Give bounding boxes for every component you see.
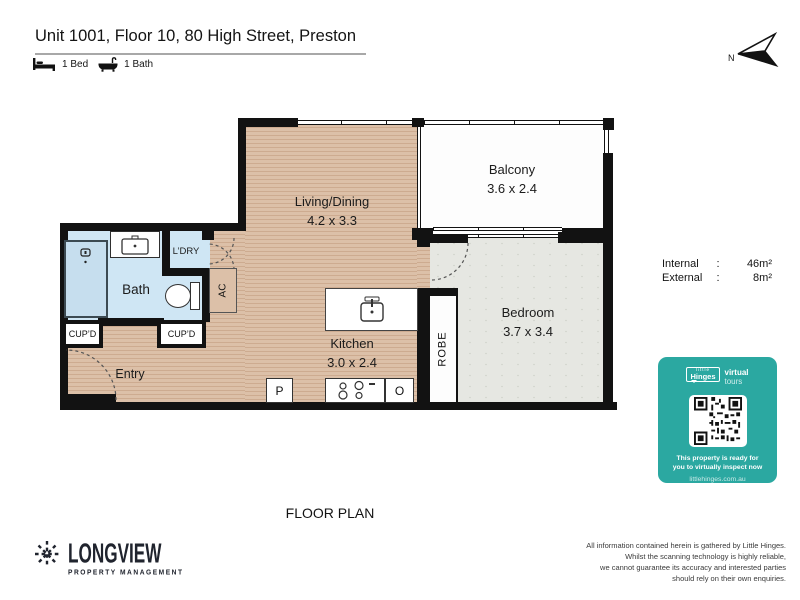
hinges-logo-box: little Hinges [686,367,719,382]
room-name: Bath [122,282,150,297]
internal-value: 46m² [722,257,772,271]
internal-area-row: Internal : 46m² [662,257,772,271]
badge-url[interactable]: littlehinges.com.au [689,476,745,483]
longview-logo: LONGVIEW PROPERTY MANAGEMENT [34,540,190,576]
room-label-entry: Entry [90,365,170,383]
shower-head-icon [79,248,93,270]
starburst-icon [34,540,60,568]
badge-message-line1: This property is ready for [673,454,763,463]
title-underline [35,53,366,55]
island-sink-icon [357,296,387,324]
robe-label: ROBE [430,295,456,402]
longview-subtitle: PROPERTY MANAGEMENT [68,569,184,577]
bed-icon [33,58,56,72]
room-label-bath: Bath [106,280,166,300]
cupboard-right-label: CUP’D [168,329,196,339]
cooktop-burners-icon [329,380,381,401]
disclaimer-line: should rely on their own enquiries. [500,574,786,585]
room-dims: 3.0 x 2.4 [327,355,377,370]
room-name: Bedroom [502,305,555,320]
ac-unit: AC [209,268,237,313]
laundry-label: L’DRY [166,245,206,259]
cooktop [325,378,385,403]
laundry-text: L’DRY [173,246,200,257]
north-arrow-icon [737,32,779,70]
longview-wordmark: LONGVIEW PROPERTY MANAGEMENT [68,540,190,576]
bed-count-label: 1 Bed [62,59,88,70]
shower [64,240,108,318]
qr-code-icon [694,397,742,445]
pantry-label: P [275,384,283,398]
robe-text: ROBE [437,331,449,366]
pantry: P [266,378,293,403]
external-value: 8m² [722,271,772,285]
floor-plan: AC P O CUP’D [60,118,617,410]
disclaimer-line: we cannot guarantee its accuracy and int… [500,563,786,574]
qr-code[interactable] [689,395,747,447]
toilet-cistern [190,282,200,310]
internal-label: Internal [662,257,714,271]
external-area-row: External : 8m² [662,271,772,285]
room-dims: 3.6 x 2.4 [487,181,537,196]
oven: O [385,378,414,403]
plan-caption: FLOOR PLAN [230,505,430,521]
room-dims: 4.2 x 3.3 [307,213,357,228]
colon: : [714,271,722,285]
room-name: Balcony [489,162,535,177]
bath-icon [98,57,118,72]
little-hinges-logo: little Hinges virtual tours [686,367,748,387]
cupboard-left: CUP’D [62,320,103,348]
brand-hinges: Hinges [690,373,715,381]
room-label-bedroom: Bedroom 3.7 x 3.4 [448,304,608,342]
room-dims: 3.7 x 3.4 [503,324,553,339]
bath-summary: 1 Bath [98,57,153,72]
north-label: N [728,53,735,63]
bath-count-label: 1 Bath [124,59,153,70]
room-name: Living/Dining [295,194,369,209]
disclaimer: All information contained herein is gath… [500,541,786,585]
north-compass: N [728,32,779,70]
tag-tours: tours [725,378,749,387]
room-label-balcony: Balcony 3.6 x 2.4 [432,161,592,199]
kitchen-island [325,288,418,331]
cupboard-right: CUP’D [157,320,206,348]
oven-label: O [395,384,404,398]
virtual-tours-wordmark: virtual tours [725,369,749,387]
badge-message-line2: you to virtually inspect now [673,463,763,472]
ac-label: AC [218,284,229,298]
sink-icon [121,235,149,255]
external-label: External [662,271,714,285]
bathroom-vanity [110,231,160,258]
longview-name: LONGVIEW [68,540,163,568]
room-name: Entry [115,367,144,381]
floorplan-page: Unit 1001, Floor 10, 80 High Street, Pre… [0,0,800,600]
area-summary: Internal : 46m² External : 8m² [662,257,772,285]
bed-bath-summary: 1 Bed 1 Bath [33,57,153,72]
disclaimer-line: All information contained herein is gath… [500,541,786,552]
page-title: Unit 1001, Floor 10, 80 High Street, Pre… [35,27,356,46]
badge-message: This property is ready for you to virtua… [673,454,763,472]
cupboard-left-label: CUP’D [69,329,97,339]
room-label-living: Living/Dining 4.2 x 3.3 [252,193,412,231]
room-name: Kitchen [330,336,373,351]
room-label-kitchen: Kitchen 3.0 x 2.4 [272,335,432,373]
disclaimer-line: Whilst the scanning technology is highly… [500,552,786,563]
toilet-bowl [165,284,191,308]
bed-summary: 1 Bed [33,58,88,72]
colon: : [714,257,722,271]
virtual-tour-badge: little Hinges virtual tours This propert… [658,357,777,483]
